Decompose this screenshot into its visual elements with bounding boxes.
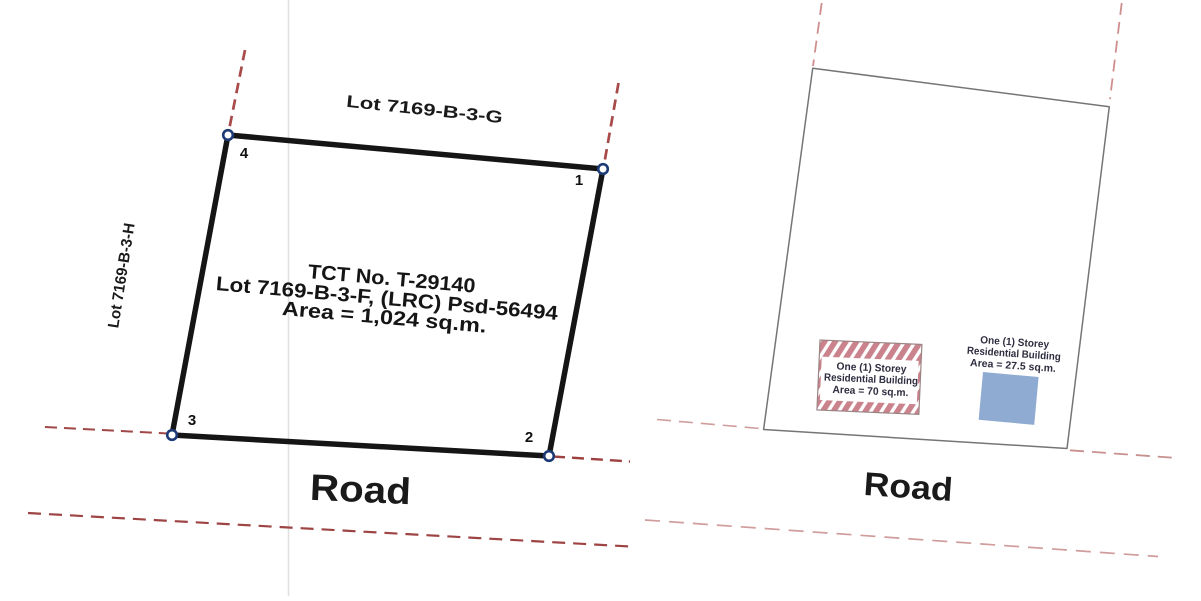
svg-text:3: 3 <box>188 412 196 429</box>
svg-text:1: 1 <box>575 172 583 189</box>
svg-text:Road: Road <box>309 467 412 512</box>
svg-text:2: 2 <box>525 429 533 446</box>
svg-text:4: 4 <box>240 145 249 162</box>
svg-text:Road: Road <box>863 465 954 508</box>
